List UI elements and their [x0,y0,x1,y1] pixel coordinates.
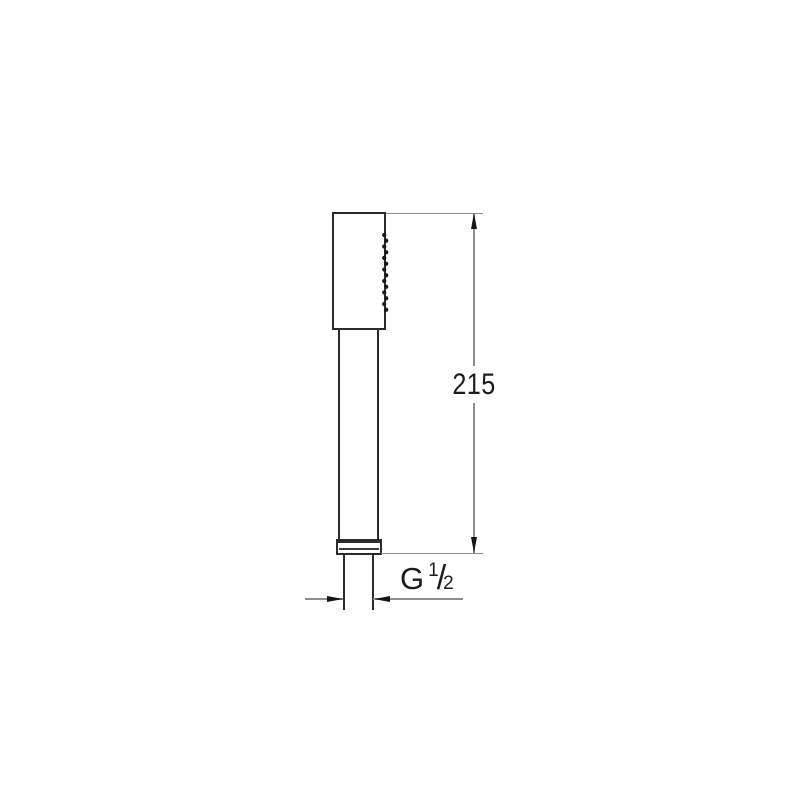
thread-size-label: G 1 / 2 [400,561,454,595]
height-dimension-line-upper [473,214,474,366]
height-dimension-label: 215 [452,370,495,400]
thread-pipe-outline [343,555,374,610]
height-dimension-line-lower [473,403,474,553]
thread-label-denominator: 2 [443,573,454,595]
arrowhead-up-icon [471,213,477,229]
shower-head-outline [332,212,386,330]
connector-nut-outline [336,539,382,555]
extension-line-bottom [381,553,483,554]
shower-handle-outline [338,330,379,539]
arrowhead-right-icon [327,596,343,602]
connector-nut-inner-line [339,548,379,550]
thread-label-numerator: 1 [428,560,439,582]
spray-nozzles-icon [379,231,391,315]
extension-line-top [386,213,483,214]
arrowhead-down-icon [471,537,477,553]
thread-label-prefix: G [400,562,424,596]
technical-drawing-canvas: 215 G 1 / 2 [0,0,800,800]
arrowhead-left-icon [374,596,390,602]
